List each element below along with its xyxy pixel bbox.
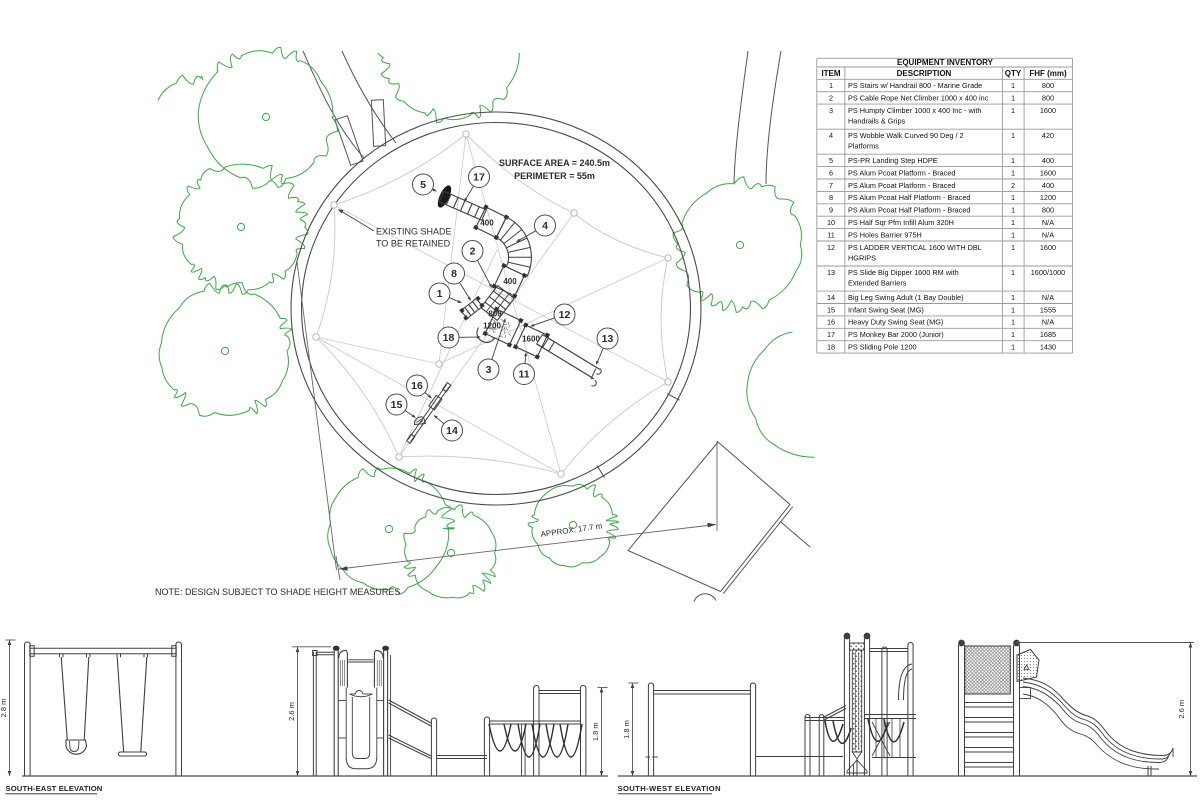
svg-text:2.6 m: 2.6 m (287, 702, 296, 721)
svg-text:1200: 1200 (1040, 193, 1056, 202)
svg-text:1: 1 (1011, 343, 1015, 352)
svg-text:EXISTING SHADE: EXISTING SHADE (376, 227, 452, 237)
svg-text:16: 16 (411, 380, 423, 392)
svg-text:SURFACE AREA = 240.5m: SURFACE AREA = 240.5m (499, 158, 610, 168)
svg-text:PS Half Sqr Pfm Infill Alum 32: PS Half Sqr Pfm Infill Alum 320H (848, 218, 954, 227)
svg-text:15: 15 (827, 305, 835, 314)
svg-text:420: 420 (1042, 131, 1054, 140)
svg-text:15: 15 (391, 399, 403, 411)
svg-text:ITEM: ITEM (821, 69, 840, 78)
svg-text:14: 14 (827, 293, 835, 302)
svg-text:3: 3 (486, 364, 492, 376)
svg-text:800: 800 (1042, 206, 1054, 215)
svg-text:1: 1 (1011, 318, 1015, 327)
svg-text:NOTE: DESIGN SUBJECT TO SHADE: NOTE: DESIGN SUBJECT TO SHADE HEIGHT MEA… (155, 587, 400, 597)
svg-text:800: 800 (1042, 81, 1054, 90)
svg-text:4: 4 (542, 220, 548, 232)
svg-text:12: 12 (559, 309, 571, 321)
svg-text:8: 8 (829, 193, 833, 202)
svg-text:1: 1 (1011, 168, 1015, 177)
svg-text:9: 9 (829, 206, 833, 215)
svg-text:1430: 1430 (1040, 343, 1056, 352)
svg-text:PS Cable Rope Net Climber 1000: PS Cable Rope Net Climber 1000 x 400 inc (848, 94, 989, 103)
svg-text:2: 2 (470, 246, 476, 258)
svg-text:1: 1 (1011, 268, 1015, 277)
svg-text:2.8 m: 2.8 m (0, 699, 8, 718)
svg-text:PS Slide Big Dipper 1600 RM wi: PS Slide Big Dipper 1600 RM with (848, 268, 959, 277)
svg-text:13: 13 (827, 268, 835, 277)
svg-text:4: 4 (829, 131, 833, 140)
svg-text:1685: 1685 (1040, 330, 1056, 339)
svg-text:400: 400 (503, 277, 517, 286)
svg-text:10: 10 (827, 218, 835, 227)
svg-text:1: 1 (1011, 293, 1015, 302)
svg-text:2.6 m: 2.6 m (1177, 700, 1186, 719)
svg-text:1: 1 (1011, 206, 1015, 215)
svg-text:PS Alum Pcoat Platform - Brace: PS Alum Pcoat Platform - Braced (848, 181, 955, 190)
svg-text:Heavy Duty Swing Seat (MG): Heavy Duty Swing Seat (MG) (848, 318, 943, 327)
svg-text:1200: 1200 (483, 322, 501, 331)
svg-text:1: 1 (437, 288, 443, 300)
svg-text:SOUTH-EAST ELEVATION: SOUTH-EAST ELEVATION (6, 784, 103, 793)
svg-text:6: 6 (829, 168, 833, 177)
svg-text:1: 1 (829, 81, 833, 90)
svg-text:PERIMETER = 55m: PERIMETER = 55m (514, 171, 595, 181)
svg-text:PS Alum Pcoat Platform - Brace: PS Alum Pcoat Platform - Braced (848, 168, 955, 177)
svg-text:PS Alum Pcoat Half Platform -: PS Alum Pcoat Half Platform - Braced (848, 206, 970, 215)
svg-text:400: 400 (480, 219, 494, 228)
svg-text:N/A: N/A (1042, 318, 1054, 327)
svg-text:PS Humpty Climber 1000 x 400 I: PS Humpty Climber 1000 x 400 Inc - with (848, 106, 981, 115)
svg-text:14: 14 (446, 425, 458, 437)
svg-text:PS-PR Landing Step HDPE: PS-PR Landing Step HDPE (848, 156, 938, 165)
svg-text:11: 11 (827, 230, 835, 239)
svg-text:N/A: N/A (1042, 293, 1054, 302)
svg-text:400: 400 (1042, 181, 1054, 190)
svg-text:1: 1 (1011, 131, 1015, 140)
svg-text:1: 1 (1011, 230, 1015, 239)
svg-text:1555: 1555 (1040, 305, 1056, 314)
svg-text:12: 12 (827, 243, 835, 252)
svg-text:1: 1 (1011, 94, 1015, 103)
svg-text:800: 800 (1042, 94, 1054, 103)
svg-text:FHF (mm): FHF (mm) (1029, 69, 1067, 78)
svg-text:18: 18 (827, 343, 835, 352)
svg-text:PS Sliding Pole 1200: PS Sliding Pole 1200 (848, 343, 917, 352)
svg-text:800: 800 (488, 310, 502, 319)
svg-text:1600/1000: 1600/1000 (1031, 268, 1066, 277)
svg-text:17: 17 (827, 330, 835, 339)
svg-text:1.8 m: 1.8 m (591, 722, 600, 741)
svg-text:PS Stairs w/ Handrail 800 - Ma: PS Stairs w/ Handrail 800 - Marine Grade (848, 81, 982, 90)
svg-text:PS Wobble Walk Curved 90 Deg /: PS Wobble Walk Curved 90 Deg / 2 (848, 131, 964, 140)
svg-text:8: 8 (451, 268, 457, 280)
svg-text:Infant Swing Seat (MG): Infant Swing Seat (MG) (848, 305, 924, 314)
svg-text:PS Holes Barrier 975H: PS Holes Barrier 975H (848, 230, 922, 239)
svg-text:2: 2 (1011, 181, 1015, 190)
svg-text:Big Leg Swing Adult (1 Bay Dou: Big Leg Swing Adult (1 Bay Double) (848, 293, 964, 302)
svg-text:QTY: QTY (1005, 69, 1022, 78)
svg-text:400: 400 (1042, 156, 1054, 165)
svg-text:Handrails & Grips: Handrails & Grips (848, 117, 906, 126)
svg-text:3: 3 (829, 106, 833, 115)
svg-text:1: 1 (1011, 156, 1015, 165)
svg-text:16: 16 (827, 318, 835, 327)
svg-text:PS Monkey Bar 2000 (Junior): PS Monkey Bar 2000 (Junior) (848, 330, 944, 339)
svg-text:1.8 m: 1.8 m (622, 720, 631, 739)
svg-text:1: 1 (1011, 81, 1015, 90)
svg-text:2: 2 (829, 94, 833, 103)
svg-text:N/A: N/A (1042, 230, 1054, 239)
svg-text:18: 18 (443, 332, 455, 344)
svg-text:1: 1 (1011, 218, 1015, 227)
svg-text:1600: 1600 (1040, 243, 1056, 252)
svg-text:13: 13 (602, 333, 614, 345)
svg-text:7: 7 (829, 181, 833, 190)
svg-text:HGRIPS: HGRIPS (848, 254, 876, 263)
svg-text:17: 17 (473, 172, 485, 184)
svg-text:Extended Barriers: Extended Barriers (848, 279, 907, 288)
svg-text:PS Alum Pcoat Half Platform -: PS Alum Pcoat Half Platform - Braced (848, 193, 970, 202)
svg-text:5: 5 (420, 179, 426, 191)
svg-text:1: 1 (1011, 193, 1015, 202)
svg-text:Platforms: Platforms (848, 142, 879, 151)
svg-text:PS LADDER VERTICAL 1600 WITH D: PS LADDER VERTICAL 1600 WITH DBL (848, 243, 982, 252)
svg-text:1: 1 (1011, 330, 1015, 339)
svg-text:11: 11 (518, 369, 529, 381)
svg-text:DESCRIPTION: DESCRIPTION (897, 69, 952, 78)
svg-text:SOUTH-WEST ELEVATION: SOUTH-WEST ELEVATION (618, 784, 721, 793)
svg-text:EQUIPMENT INVENTORY: EQUIPMENT INVENTORY (897, 58, 994, 67)
svg-text:5: 5 (829, 156, 833, 165)
svg-text:N/A: N/A (1042, 218, 1054, 227)
svg-text:1600: 1600 (1040, 168, 1056, 177)
svg-text:1600: 1600 (1040, 106, 1056, 115)
svg-text:1: 1 (1011, 106, 1015, 115)
svg-text:1: 1 (1011, 243, 1015, 252)
svg-text:1: 1 (1011, 305, 1015, 314)
svg-text:TO BE RETAINED: TO BE RETAINED (376, 239, 451, 249)
